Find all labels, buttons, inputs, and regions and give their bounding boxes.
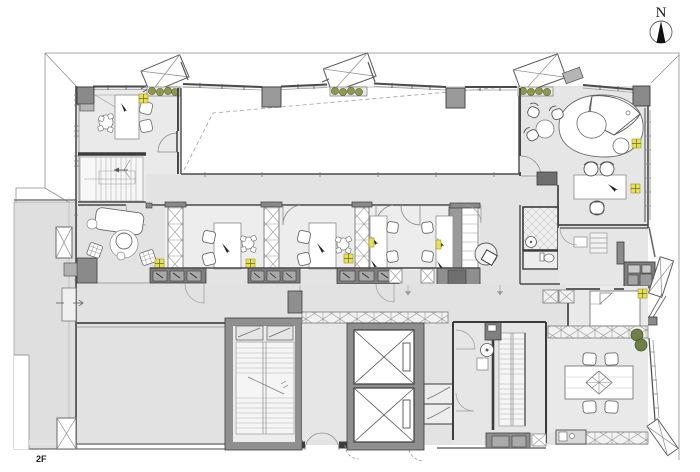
svg-text:2F: 2F xyxy=(36,454,47,464)
svg-text:N: N xyxy=(656,5,667,21)
